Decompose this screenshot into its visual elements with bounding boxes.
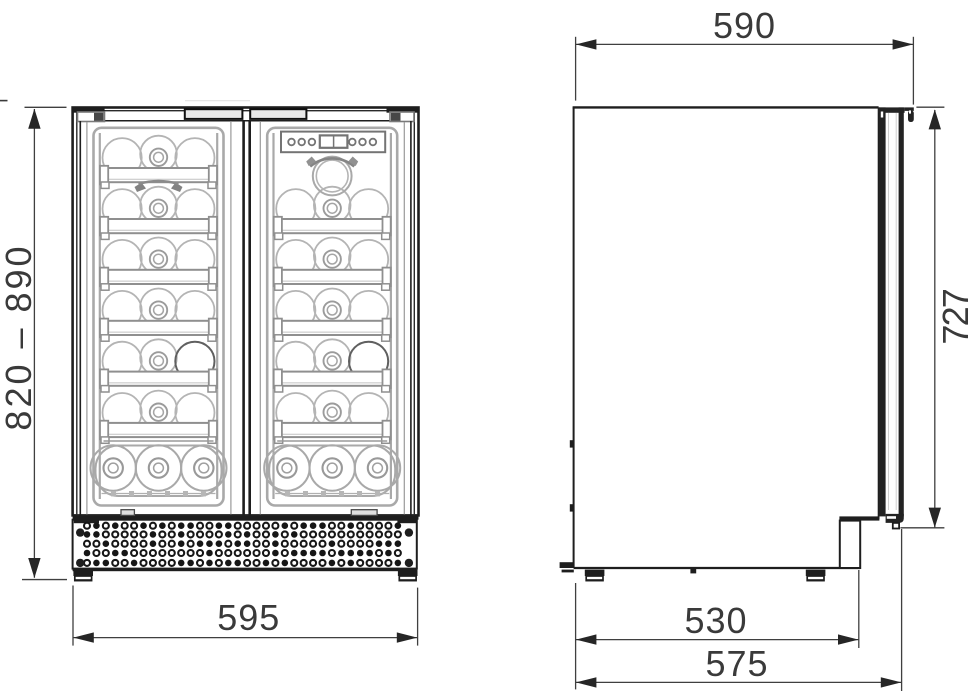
svg-text:595: 595 — [217, 597, 280, 638]
svg-text:820 – 890: 820 – 890 — [0, 243, 39, 430]
svg-text:530: 530 — [684, 600, 747, 641]
svg-text:590: 590 — [713, 5, 776, 46]
svg-text:727: 727 — [935, 289, 976, 344]
svg-text:575: 575 — [705, 643, 768, 684]
